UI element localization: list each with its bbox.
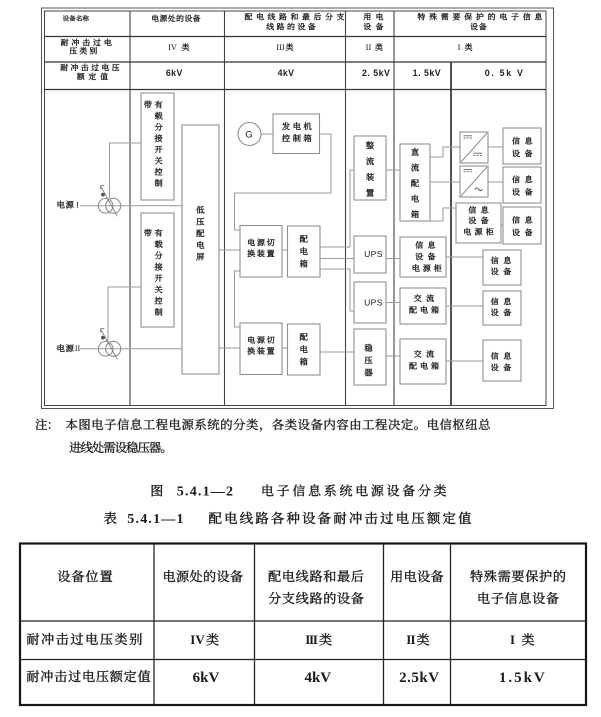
svg-text:5.4.1—1: 5.4.1—1 [127, 512, 184, 527]
svg-text:I: I [510, 632, 515, 647]
svg-text:1.5kV: 1.5kV [499, 670, 547, 686]
svg-text:0. 5k V: 0. 5k V [485, 68, 525, 78]
svg-text:UPS: UPS [364, 298, 383, 308]
svg-text:I: I [76, 200, 79, 209]
svg-text:I: I [458, 42, 461, 52]
svg-text:II: II [406, 632, 415, 647]
svg-text:2.5kV: 2.5kV [399, 670, 439, 686]
svg-text:5.4.1—2: 5.4.1—2 [177, 485, 234, 500]
svg-text:6kV: 6kV [166, 68, 183, 78]
svg-text:1. 5kV: 1. 5kV [413, 68, 441, 78]
svg-text:II: II [75, 344, 81, 353]
svg-text:III: III [276, 42, 285, 52]
svg-text:II: II [366, 42, 372, 52]
svg-text:2. 5kV: 2. 5kV [362, 68, 390, 78]
svg-text:4kV: 4kV [278, 68, 295, 78]
svg-text:4kV: 4kV [304, 670, 331, 686]
svg-text:IV: IV [168, 42, 178, 52]
svg-text:III: III [305, 632, 318, 647]
svg-text:G: G [245, 130, 252, 141]
svg-text:6kV: 6kV [193, 670, 220, 686]
svg-text:UPS: UPS [364, 249, 383, 259]
svg-text:IV: IV [190, 632, 205, 647]
